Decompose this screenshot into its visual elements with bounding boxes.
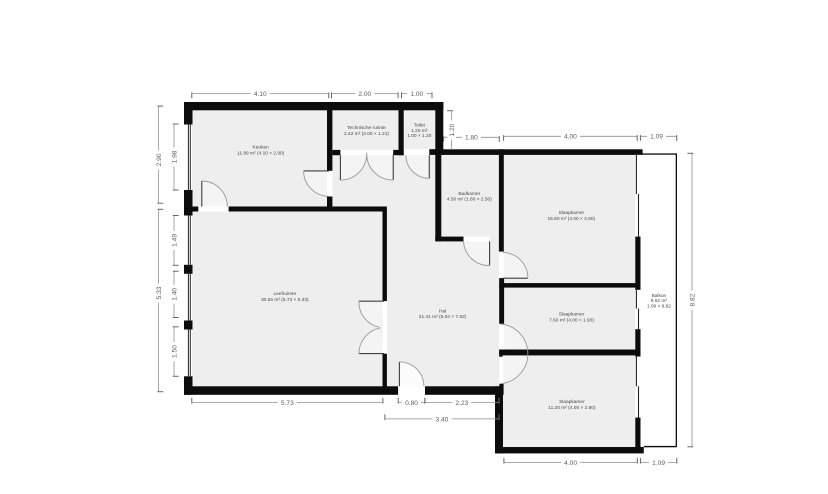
svg-text:1.20: 1.20 <box>449 123 456 136</box>
svg-text:1.80: 1.80 <box>465 135 478 142</box>
svg-text:1.09 × 8.82: 1.09 × 8.82 <box>647 304 671 310</box>
svg-text:1.50: 1.50 <box>171 345 178 358</box>
svg-text:9.62 m²: 9.62 m² <box>651 298 668 304</box>
svg-text:2.23: 2.23 <box>456 400 469 407</box>
svg-text:Technische ruimte: Technische ruimte <box>347 125 386 131</box>
svg-text:1.09: 1.09 <box>650 134 663 141</box>
svg-text:7.60 m² (4.00 × 1.90): 7.60 m² (4.00 × 1.90) <box>549 318 594 324</box>
svg-text:1.20 m²: 1.20 m² <box>411 128 428 134</box>
svg-text:1.40: 1.40 <box>171 288 178 301</box>
svg-text:30.56 m² (5.73 × 5.33): 30.56 m² (5.73 × 5.33) <box>261 297 309 303</box>
svg-text:4.00: 4.00 <box>564 134 577 141</box>
svg-text:Keuken: Keuken <box>253 144 270 150</box>
svg-text:0.80: 0.80 <box>405 400 418 407</box>
svg-text:5.73: 5.73 <box>281 400 294 407</box>
svg-text:Balkon: Balkon <box>652 293 667 299</box>
svg-text:5.33: 5.33 <box>156 286 163 299</box>
svg-text:Toilet: Toilet <box>414 122 426 128</box>
svg-text:8.82: 8.82 <box>689 293 696 306</box>
svg-text:3.40: 3.40 <box>436 416 449 423</box>
svg-text:15.60 m² (4.00 × 3.90): 15.60 m² (4.00 × 3.90) <box>547 216 595 222</box>
svg-text:1.00 × 1.20: 1.00 × 1.20 <box>407 133 431 139</box>
svg-text:Badkamer: Badkamer <box>458 191 480 197</box>
svg-text:1.00: 1.00 <box>410 91 423 98</box>
svg-text:21.41 m² (5.04 × 7.62): 21.41 m² (5.04 × 7.62) <box>419 314 467 320</box>
svg-text:1.49: 1.49 <box>171 234 178 247</box>
svg-text:4.50 m² (1.80 × 2.50): 4.50 m² (1.80 × 2.50) <box>447 197 492 203</box>
svg-text:2.00: 2.00 <box>358 91 371 98</box>
svg-text:Leefruimte: Leefruimte <box>273 291 296 297</box>
svg-text:1.98: 1.98 <box>171 150 178 163</box>
svg-text:Slaapkamer: Slaapkamer <box>559 312 585 318</box>
svg-text:11.89 m² (4.10 × 2.90): 11.89 m² (4.10 × 2.90) <box>237 151 285 157</box>
svg-text:Slaapkamer: Slaapkamer <box>558 210 584 216</box>
svg-text:4.10: 4.10 <box>254 91 267 98</box>
svg-text:2.42 m² (2.00 × 1.21): 2.42 m² (2.00 × 1.21) <box>344 131 389 137</box>
svg-text:1.09: 1.09 <box>652 460 665 467</box>
svg-text:Slaapkamer: Slaapkamer <box>559 399 585 405</box>
svg-text:Hal: Hal <box>439 308 446 314</box>
svg-text:4.00: 4.00 <box>564 460 577 467</box>
svg-text:2.90: 2.90 <box>156 153 163 166</box>
svg-text:11.20 m² (4.00 × 2.80): 11.20 m² (4.00 × 2.80) <box>548 405 596 411</box>
